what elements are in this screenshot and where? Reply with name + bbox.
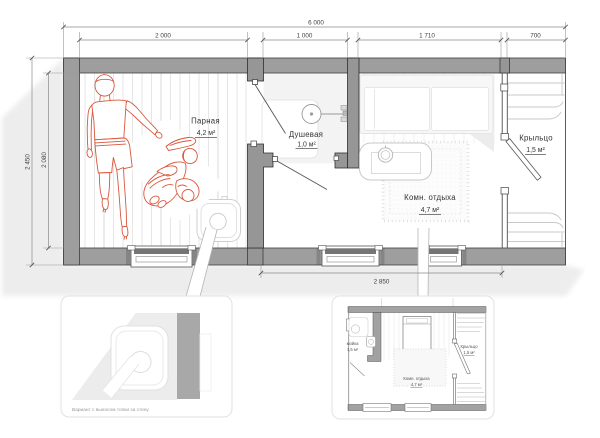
svg-text:2 000: 2 000: [155, 33, 171, 40]
svg-text:1 710: 1 710: [419, 33, 435, 40]
svg-text:700: 700: [530, 33, 541, 40]
svg-text:Комн. отдыха: Комн. отдыха: [404, 193, 456, 202]
svg-text:Парная: Парная: [191, 117, 220, 126]
svg-text:2 850: 2 850: [374, 279, 390, 286]
svg-text:1 000: 1 000: [297, 33, 313, 40]
svg-text:1,5 м²: 1,5 м²: [526, 147, 545, 154]
svg-text:1,5 м²: 1,5 м²: [347, 347, 359, 352]
svg-text:Вариант с выносом топки за сте: Вариант с выносом топки за стену: [72, 407, 149, 413]
svg-text:1,0 м²: 1,0 м²: [297, 142, 316, 149]
svg-text:2 450: 2 450: [25, 154, 32, 170]
svg-text:Крыльцо: Крыльцо: [460, 344, 478, 349]
svg-text:2 080: 2 080: [41, 152, 48, 168]
svg-text:Крыльцо: Крыльцо: [519, 134, 553, 143]
svg-text:4,2 м²: 4,2 м²: [197, 130, 216, 137]
svg-text:Душевая: Душевая: [289, 130, 323, 139]
svg-text:1,5 м²: 1,5 м²: [463, 350, 475, 355]
svg-text:Комн. отдыха: Комн. отдыха: [403, 376, 430, 381]
svg-text:4,7 м²: 4,7 м²: [421, 207, 440, 214]
svg-text:6 000: 6 000: [308, 20, 324, 27]
svg-text:4,7 м²: 4,7 м²: [411, 382, 423, 387]
svg-text:мойка: мойка: [347, 341, 359, 346]
